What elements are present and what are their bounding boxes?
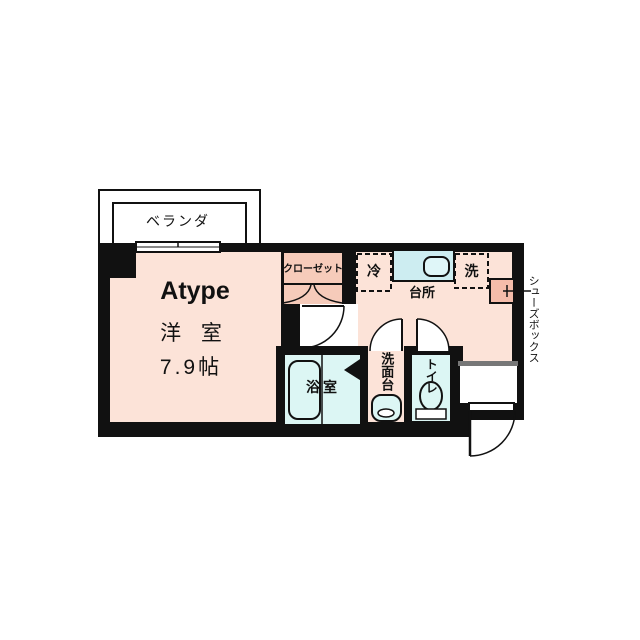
bathroom-label: 浴室 [292, 380, 354, 395]
closet [282, 252, 344, 304]
kitchen-counter [393, 250, 454, 281]
front-door-sill [469, 403, 514, 411]
shoe-box [490, 279, 531, 303]
kitchen-label: 台所 [391, 286, 453, 300]
unit-type-label: Atype [130, 278, 260, 306]
washing-machine-label: 洗 [455, 264, 488, 279]
veranda-window [136, 242, 220, 252]
floor-plan-svg [0, 0, 640, 640]
toilet-label: トイレ [424, 358, 437, 410]
main-room-door [300, 304, 358, 348]
kitchen-sink [424, 257, 449, 276]
shoe-box-label: シューズボックス [527, 275, 539, 385]
floor-plan-page: ベランダ Atype 洋 室 7.9帖 クローゼット 冷 台所 洗 シューズボッ… [0, 0, 640, 640]
corner-pillar [98, 243, 136, 278]
main-room-name: 洋 室 [130, 322, 252, 345]
main-room-size: 7.9帖 [130, 356, 252, 379]
refrigerator-label: 冷 [357, 264, 391, 279]
entrance-step [458, 361, 518, 366]
washstand-label: 洗面台 [379, 352, 393, 414]
closet-label: クローゼット [283, 264, 343, 275]
toilet-tank [416, 409, 446, 419]
veranda-label: ベランダ [133, 214, 223, 229]
